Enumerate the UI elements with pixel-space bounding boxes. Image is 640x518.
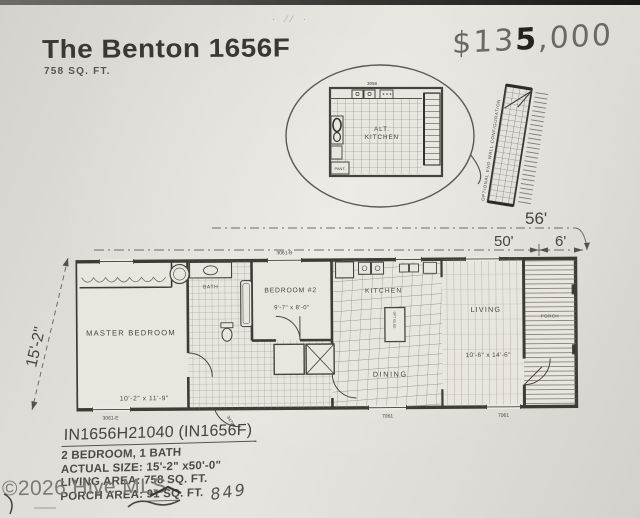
alt-kitchen-label-2: KITCHEN — [365, 134, 399, 141]
counter-box — [423, 262, 436, 273]
hall-closet — [274, 344, 304, 374]
window-living-bottom — [486, 404, 520, 409]
kitchen-label: KITCHEN — [365, 288, 402, 295]
square-footage-subtitle: 758 SQ. FT. — [44, 66, 111, 77]
sink-counter-icon — [380, 90, 393, 99]
toilet-icon — [222, 328, 232, 341]
island-label: OPT ISLND — [392, 312, 396, 329]
price-part3: ,000 — [538, 18, 613, 57]
window-kitchen-top — [395, 257, 421, 262]
width-dimension: 15'-2" — [6, 252, 78, 422]
bedroom2-size: 9'-7" x 8'-0" — [274, 305, 309, 311]
window-label-3061E: 3061-E — [102, 415, 119, 421]
master-bedroom-label: MASTER BEDROOM — [86, 328, 176, 338]
page-curl-mark — [4, 494, 12, 514]
living-carpet-floor — [441, 259, 524, 408]
burner-circle-2 — [375, 266, 380, 271]
pantry-box: PANT. — [331, 162, 349, 174]
living-size: 10'-6" x 14'-6" — [465, 352, 510, 359]
scanned-flyer: The Benton 1656F 758 SQ. FT. · ⁄⁄ · $135… — [0, 0, 640, 518]
porch-step-mark-bottom — [572, 344, 576, 354]
window-label-7061-living: 7061 — [498, 413, 509, 419]
sink-bowl-2 — [409, 264, 418, 272]
alt-kitchen-inset: PANT. ALT. KITCHEN 3058 — [280, 56, 486, 220]
toilet-tank — [221, 323, 233, 328]
dining-label: DINING — [373, 369, 408, 378]
inset-plan: PANT. ALT. KITCHEN 3058 — [330, 81, 442, 176]
living-label: LIVING — [470, 305, 501, 314]
bath-label: BATH — [203, 284, 218, 290]
window-master-top — [99, 259, 133, 264]
bottom-scribbles — [0, 480, 240, 518]
window-bedroom2-top — [267, 258, 301, 263]
porch-step-mark-top — [572, 284, 576, 294]
pencil-caret — [150, 487, 181, 496]
page-title: The Benton 1656F — [42, 32, 290, 65]
sink-bowl-1 — [399, 264, 408, 272]
burner-circle-1 — [362, 266, 367, 271]
window-dining-bottom — [368, 405, 406, 410]
pantry-label: PANT. — [334, 166, 345, 171]
bath-sink-icon — [204, 266, 218, 275]
window-label-3061B: 3061-B — [276, 250, 293, 256]
price-part2-bold: 5 — [515, 22, 538, 58]
fridge-icon — [335, 262, 353, 278]
handwritten-price: $135,000 — [452, 18, 613, 62]
inset-window-label: 3058 — [367, 81, 378, 86]
window-master-bottom — [92, 407, 130, 412]
porch-label: PORCH — [541, 313, 559, 318]
bedroom2-label: BEDROOM #2 — [264, 287, 317, 294]
dim-label-15-2: 15'-2" — [23, 325, 49, 369]
window-living-top — [465, 257, 499, 262]
main-floor-plan: MASTER BEDROOM 10'-2" x 11'-9" BATH BEDR… — [75, 242, 588, 432]
alt-kitchen-label-1: ALT. — [374, 126, 390, 133]
stove-icon — [352, 90, 375, 99]
washer-dryer-inner — [174, 268, 186, 280]
window-label-7061-dining: 7061 — [382, 414, 393, 420]
tub-inner — [243, 284, 250, 324]
master-bedroom-size: 10'-2" x 11'-9" — [120, 395, 169, 402]
pencil-stray-marks: · ⁄⁄ · — [272, 14, 310, 24]
tall-cabinet-column — [424, 93, 440, 165]
model-number: IN1656H21040 (IN1656F) — [62, 422, 257, 447]
range-oven-icon — [331, 116, 343, 144]
scan-edge-shadow — [0, 0, 640, 5]
cabinet-box — [331, 146, 342, 159]
pencil-squiggle — [128, 500, 180, 507]
porch-deck-floor — [523, 258, 576, 406]
dim-label-56: 56' — [525, 209, 547, 228]
